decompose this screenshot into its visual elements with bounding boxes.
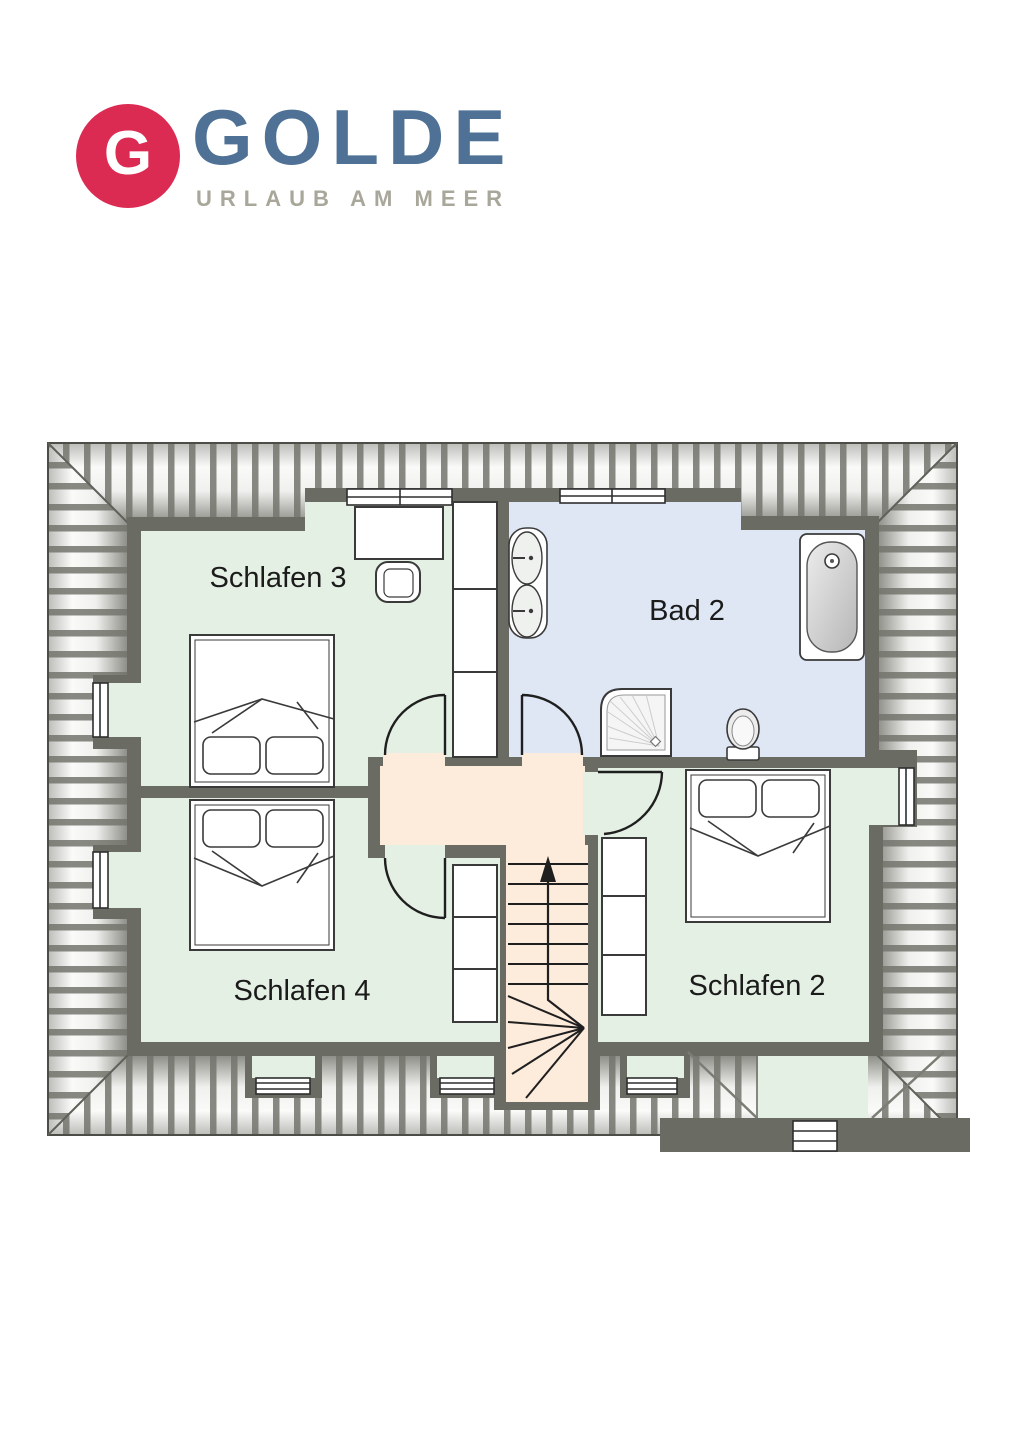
- door-opening-schlafen4: [385, 845, 445, 858]
- room-label-schlafen-2: Schlafen 2: [688, 970, 825, 1003]
- double-washbasin: [509, 528, 547, 638]
- double-bed-schlafen-4: [190, 800, 334, 950]
- hallway-floor: [380, 766, 585, 845]
- window-schlafen3-top: [347, 489, 452, 505]
- floor-plan: Schlafen 3 Bad 2 Schlafen 4 Schlafen 2: [0, 0, 1018, 1440]
- floor-plan-drawing: [0, 0, 1018, 1440]
- window-schlafen4-left: [93, 852, 108, 908]
- door-opening-schlafen3: [383, 753, 445, 766]
- window-terrace: [793, 1121, 837, 1151]
- window-schlafen2-bottom: [627, 1078, 677, 1094]
- door-opening-schlafen2: [583, 772, 600, 835]
- desk: [355, 507, 443, 559]
- window-schlafen3-left: [93, 683, 108, 737]
- bathtub: [800, 534, 864, 660]
- room-label-bad-2: Bad 2: [649, 595, 725, 628]
- window-schlafen4-bottom-2: [440, 1078, 494, 1094]
- door-opening-bad2: [522, 753, 583, 766]
- room-label-schlafen-3: Schlafen 3: [209, 562, 346, 595]
- double-bed-schlafen-2: [686, 770, 830, 922]
- double-bed-schlafen-3: [190, 635, 334, 787]
- wardrobe-schlafen-4: [453, 865, 497, 1022]
- window-schlafen4-bottom-1: [256, 1078, 310, 1094]
- toilet: [727, 709, 759, 760]
- room-label-schlafen-4: Schlafen 4: [233, 975, 370, 1008]
- window-bad2-top: [560, 489, 665, 503]
- wardrobe-schlafen-3: [453, 502, 497, 757]
- wardrobe-schlafen-2: [602, 838, 646, 1015]
- window-schlafen2-right: [899, 768, 914, 825]
- desk-chair: [376, 562, 420, 602]
- shower: [601, 689, 671, 756]
